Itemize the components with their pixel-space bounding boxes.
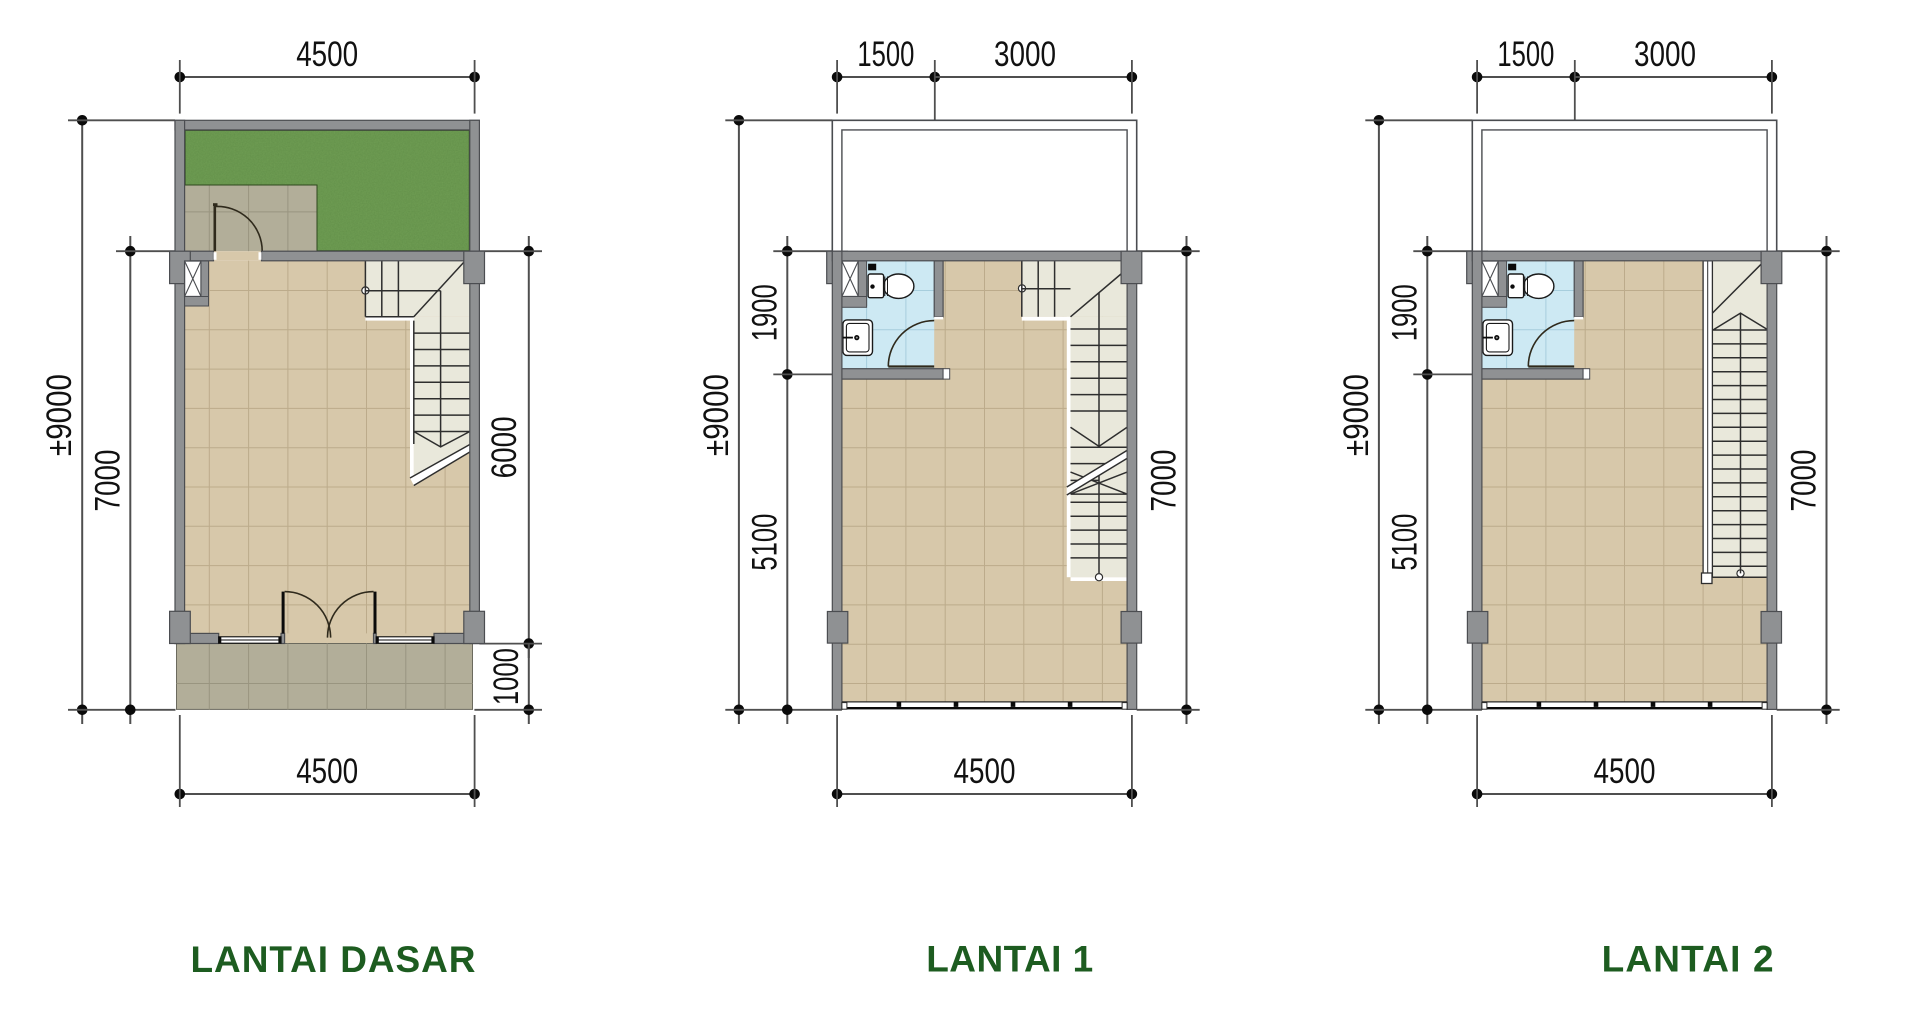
svg-text:4500: 4500 (296, 752, 358, 791)
svg-text:LANTAI 2: LANTAI 2 (1602, 938, 1774, 979)
svg-text:LANTAI DASAR: LANTAI DASAR (191, 939, 476, 980)
svg-text:1000: 1000 (487, 648, 526, 705)
svg-text:LANTAI 1: LANTAI 1 (926, 938, 1093, 979)
svg-text:4500: 4500 (296, 35, 358, 74)
svg-text:5100: 5100 (745, 514, 784, 571)
svg-text:7000: 7000 (1145, 450, 1184, 512)
svg-text:6000: 6000 (485, 416, 524, 478)
svg-text:1500: 1500 (1497, 35, 1554, 74)
svg-text:±9000: ±9000 (40, 374, 79, 456)
svg-text:1500: 1500 (857, 35, 914, 74)
svg-text:7000: 7000 (88, 450, 127, 512)
svg-text:5100: 5100 (1385, 514, 1424, 571)
svg-text:3000: 3000 (1634, 35, 1696, 74)
svg-text:3000: 3000 (994, 35, 1056, 74)
svg-text:4500: 4500 (954, 752, 1016, 791)
svg-text:1900: 1900 (745, 284, 784, 341)
svg-text:7000: 7000 (1785, 450, 1824, 512)
svg-text:±9000: ±9000 (1337, 374, 1376, 456)
svg-text:±9000: ±9000 (697, 374, 736, 456)
svg-text:1900: 1900 (1385, 284, 1424, 341)
svg-text:4500: 4500 (1594, 752, 1656, 791)
